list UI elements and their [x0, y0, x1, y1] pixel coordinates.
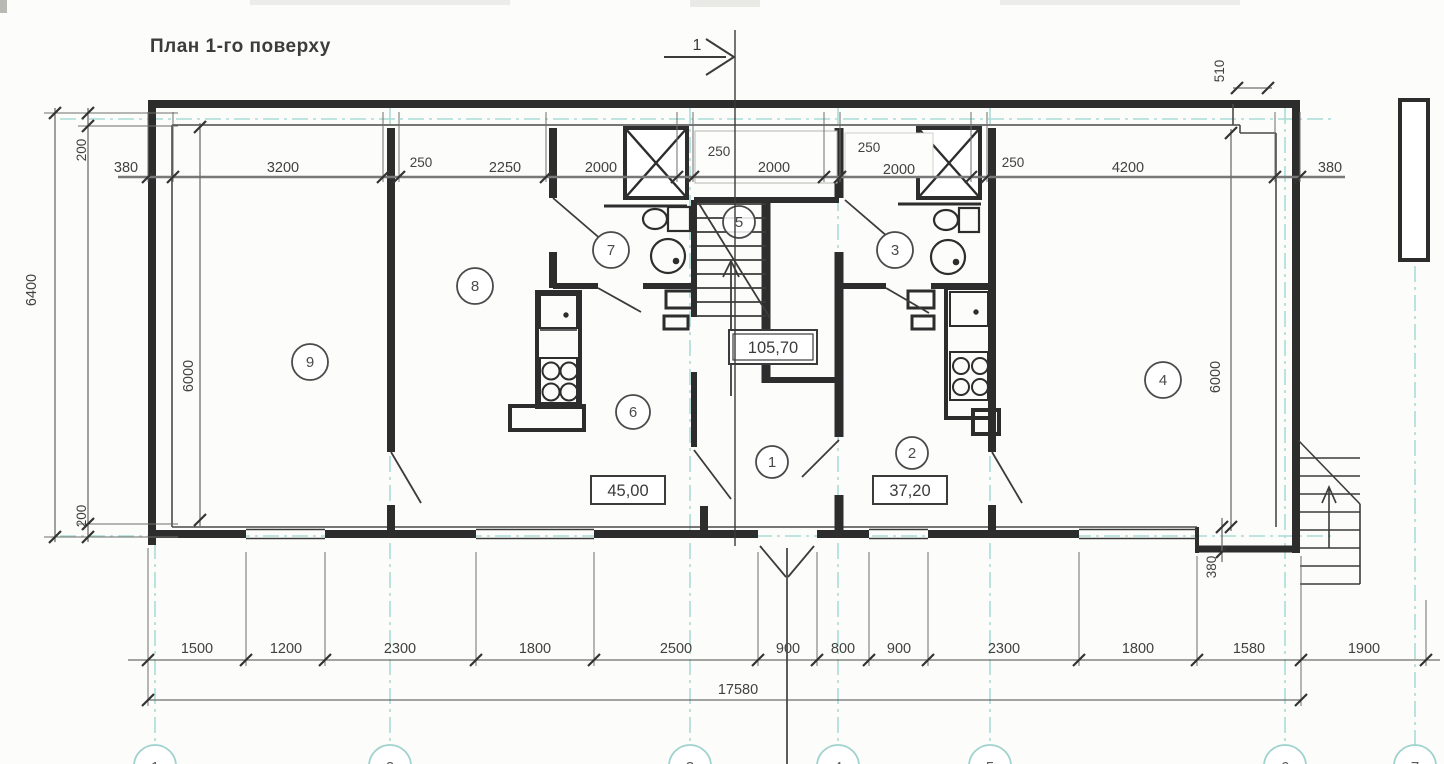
axis-number: 3	[686, 759, 694, 764]
dimension-labels-bottom: 1500 1200 2300 1800 2500 900 800 900 230…	[181, 641, 1380, 698]
room-number: 4	[1159, 372, 1167, 389]
room-number: 9	[306, 354, 314, 371]
dim-label: 800	[831, 641, 855, 657]
dim-label: 380	[1204, 556, 1219, 579]
room-number: 6	[629, 404, 637, 421]
kitchen-sink-icon	[540, 295, 577, 328]
dim-label: 1200	[270, 641, 302, 657]
dim-total-label: 17580	[718, 682, 758, 698]
partitions	[391, 128, 992, 534]
dim-label: 2000	[758, 160, 790, 176]
area-right-unit-label: 37,20	[889, 482, 930, 500]
dim-label: 250	[410, 155, 433, 170]
page-title: План 1-го поверху	[150, 36, 331, 57]
dim-label: 250	[708, 144, 731, 159]
dim-label: 1580	[1233, 641, 1265, 657]
axis-number: 2	[386, 759, 394, 764]
axis-number: 6	[1281, 759, 1289, 764]
floor-plan-page: 380 3200 250 2250 2000 250 2000 250 2000…	[0, 0, 1444, 764]
axis-number: 5	[986, 759, 994, 764]
dim-label: 1900	[1348, 641, 1380, 657]
room-number: 3	[891, 242, 899, 259]
dim-label: 2500	[660, 641, 692, 657]
dim-label: 380	[114, 160, 138, 176]
sink-icon	[651, 239, 685, 273]
dim-label: 6000	[1208, 361, 1224, 393]
pier-detail	[1400, 100, 1428, 260]
dim-label: 510	[1212, 60, 1227, 83]
room-number: 7	[607, 242, 615, 259]
room-number: 2	[908, 445, 916, 462]
dim-label: 250	[858, 140, 881, 155]
axis-number: 1	[151, 759, 159, 764]
dim-label: 900	[887, 641, 911, 657]
room-number: 8	[471, 278, 479, 295]
dim-label: 2300	[988, 641, 1020, 657]
dim-label: 6000	[181, 360, 197, 392]
scan-artifacts	[0, 0, 1240, 13]
dim-label: 6400	[24, 274, 40, 306]
axis-number: 4	[834, 759, 842, 764]
dim-label: 1800	[1122, 641, 1154, 657]
toilet-icon	[643, 209, 667, 229]
room-number: 1	[768, 454, 776, 471]
kitchen-sink-icon	[950, 292, 988, 326]
axis-number: 7	[1411, 759, 1419, 764]
dim-label: 1800	[519, 641, 551, 657]
dim-label: 380	[1318, 160, 1342, 176]
floorplan-canvas: 380 3200 250 2250 2000 250 2000 250 2000…	[0, 0, 1444, 764]
sink-icon	[931, 240, 965, 274]
dim-label: 200	[74, 505, 89, 528]
area-left-unit-label: 45,00	[607, 482, 648, 500]
dim-label: 2000	[585, 160, 617, 176]
dim-label: 2300	[384, 641, 416, 657]
dim-label: 1500	[181, 641, 213, 657]
dim-label: 2000	[883, 162, 915, 178]
section-number: 1	[693, 37, 702, 54]
dim-label: 2250	[489, 160, 521, 176]
dim-label: 250	[1002, 155, 1025, 170]
dim-label: 4200	[1112, 160, 1144, 176]
dim-label: 900	[776, 641, 800, 657]
axis-bubbles: 1 2 3 4 5 6 7	[134, 745, 1436, 764]
dim-label: 3200	[267, 160, 299, 176]
room-number: 5	[735, 214, 743, 231]
stair-exterior	[1298, 440, 1360, 584]
dim-label: 200	[74, 139, 89, 162]
toilet-icon	[934, 210, 958, 230]
area-total-label: 105,70	[748, 339, 798, 357]
